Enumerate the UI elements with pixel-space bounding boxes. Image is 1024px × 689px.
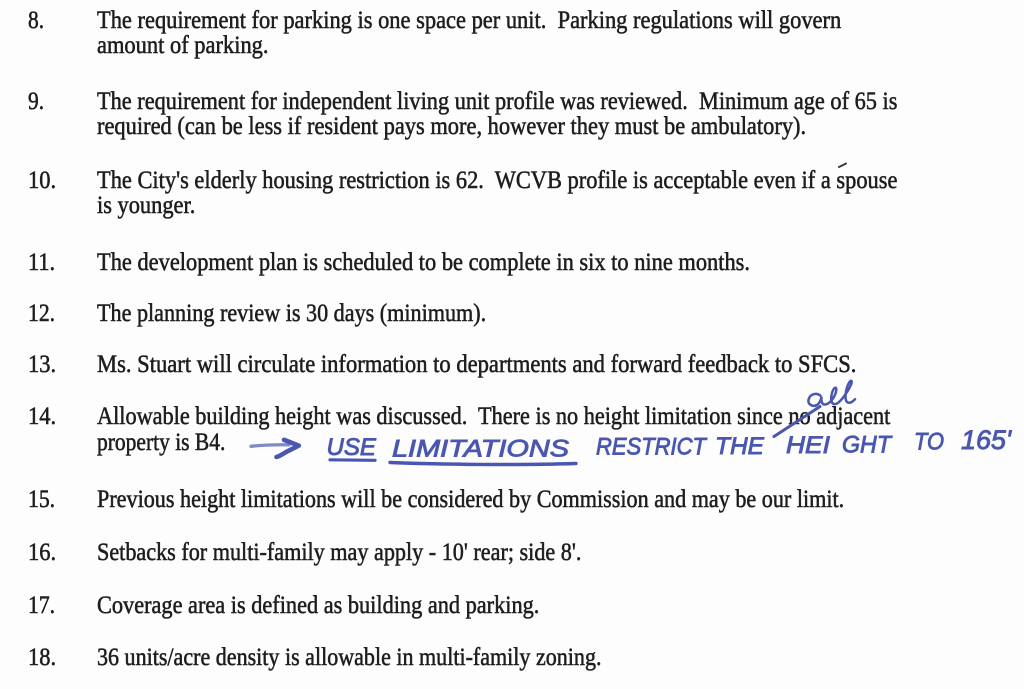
svg-text:TO: TO bbox=[914, 429, 944, 456]
svg-text:RESTRICT: RESTRICT bbox=[596, 434, 708, 461]
svg-text:GHT: GHT bbox=[842, 432, 893, 459]
svg-text:HEI: HEI bbox=[786, 432, 830, 459]
svg-text:USE: USE bbox=[327, 434, 377, 461]
svg-text:165': 165' bbox=[961, 425, 1012, 455]
svg-text:LIMITATIONS: LIMITATIONS bbox=[392, 436, 570, 463]
svg-text:THE: THE bbox=[715, 433, 765, 460]
